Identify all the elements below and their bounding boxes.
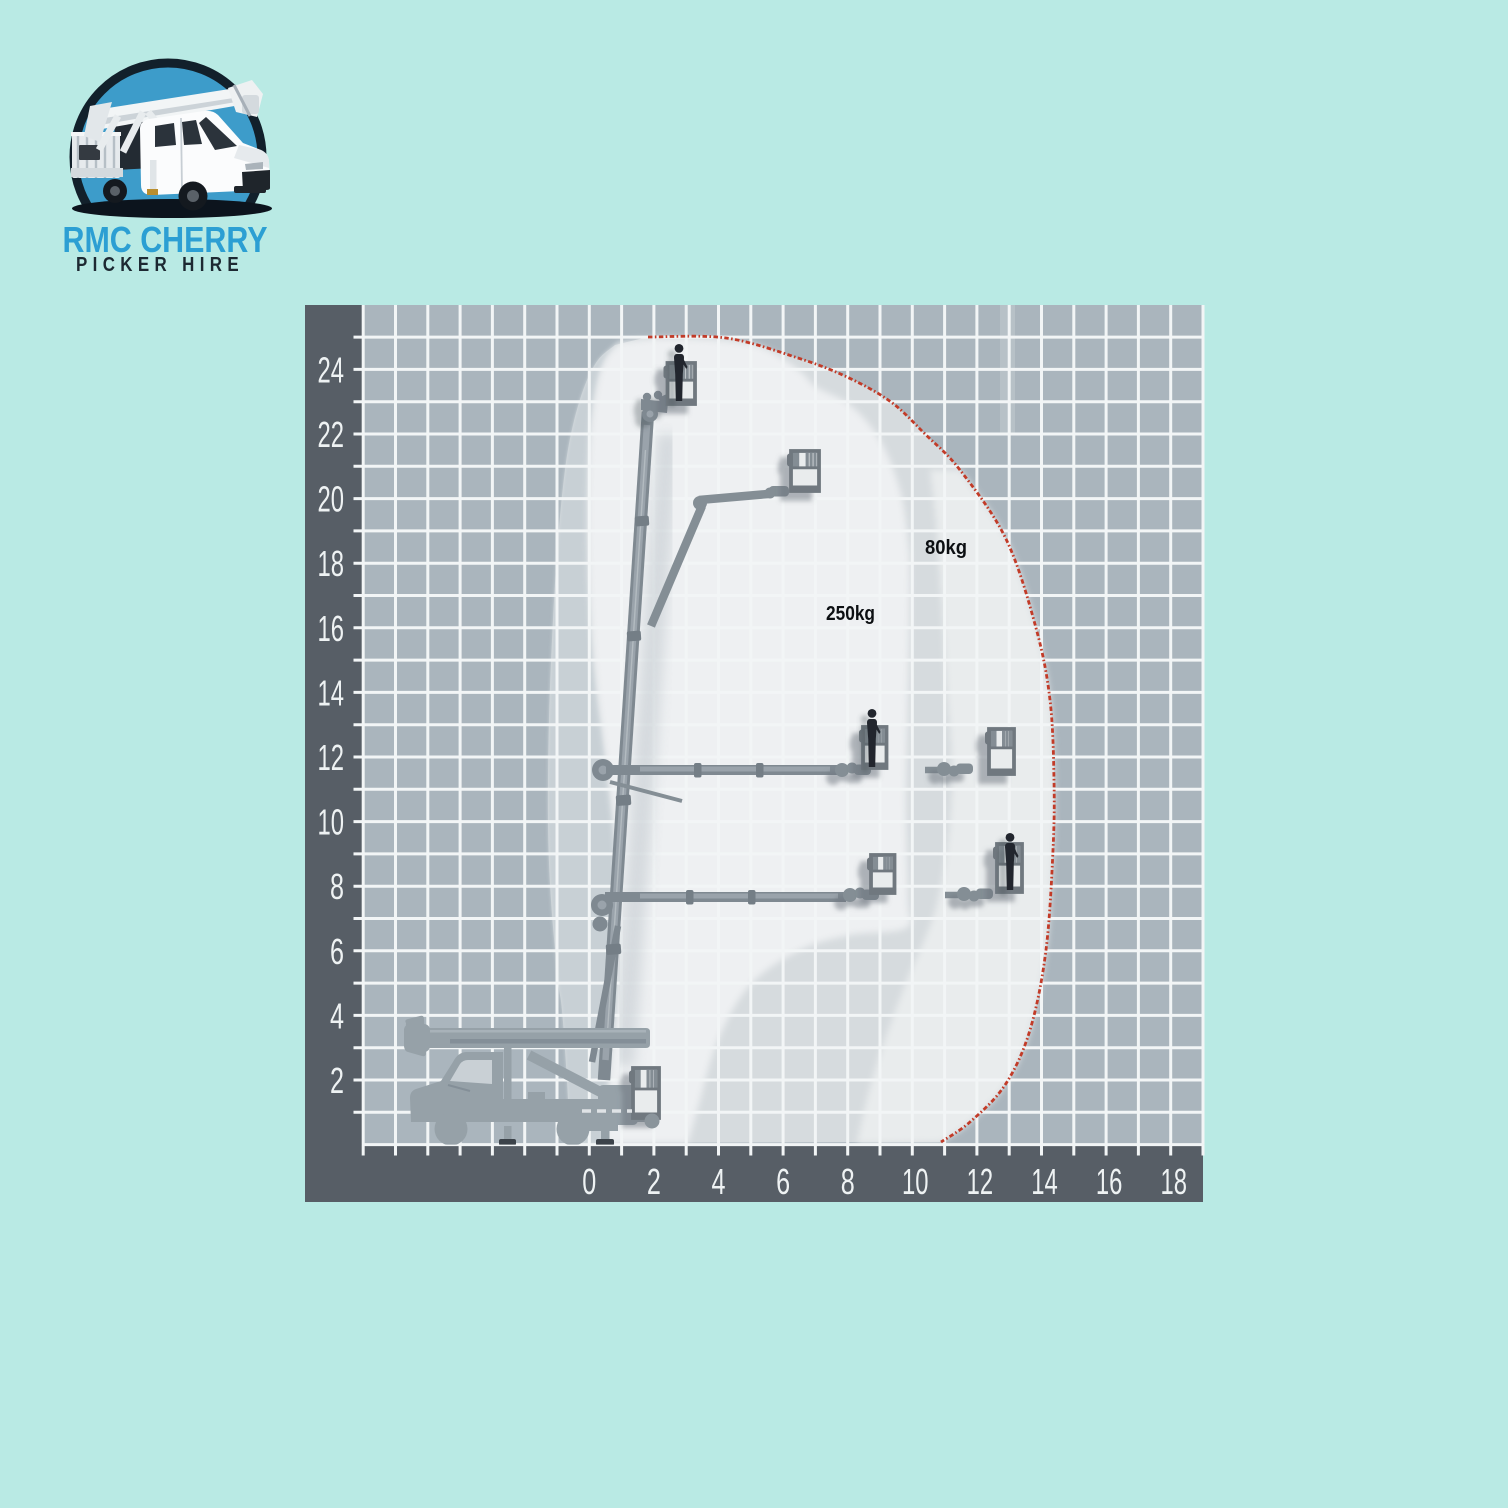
svg-text:12: 12 [967,1161,994,1202]
svg-text:2: 2 [330,1060,344,1101]
svg-text:80kg: 80kg [925,536,967,559]
svg-text:12: 12 [318,737,345,778]
svg-text:PICKER HIRE: PICKER HIRE [76,253,244,276]
svg-text:0: 0 [582,1161,596,1202]
svg-text:2: 2 [647,1161,661,1202]
svg-text:14: 14 [1031,1161,1058,1202]
svg-text:8: 8 [330,866,344,907]
svg-text:10: 10 [318,802,345,843]
svg-text:20: 20 [318,479,345,520]
svg-text:8: 8 [841,1161,855,1202]
svg-text:4: 4 [330,995,344,1036]
svg-text:18: 18 [318,543,345,584]
svg-text:14: 14 [318,672,345,713]
svg-text:6: 6 [330,931,344,972]
svg-text:10: 10 [902,1161,929,1202]
svg-text:6: 6 [776,1161,790,1202]
svg-text:22: 22 [318,414,345,455]
svg-text:24: 24 [318,349,345,390]
svg-text:4: 4 [712,1161,726,1202]
svg-text:250kg: 250kg [826,602,875,625]
svg-text:16: 16 [318,608,345,649]
svg-text:16: 16 [1096,1161,1123,1202]
svg-text:18: 18 [1160,1161,1187,1202]
